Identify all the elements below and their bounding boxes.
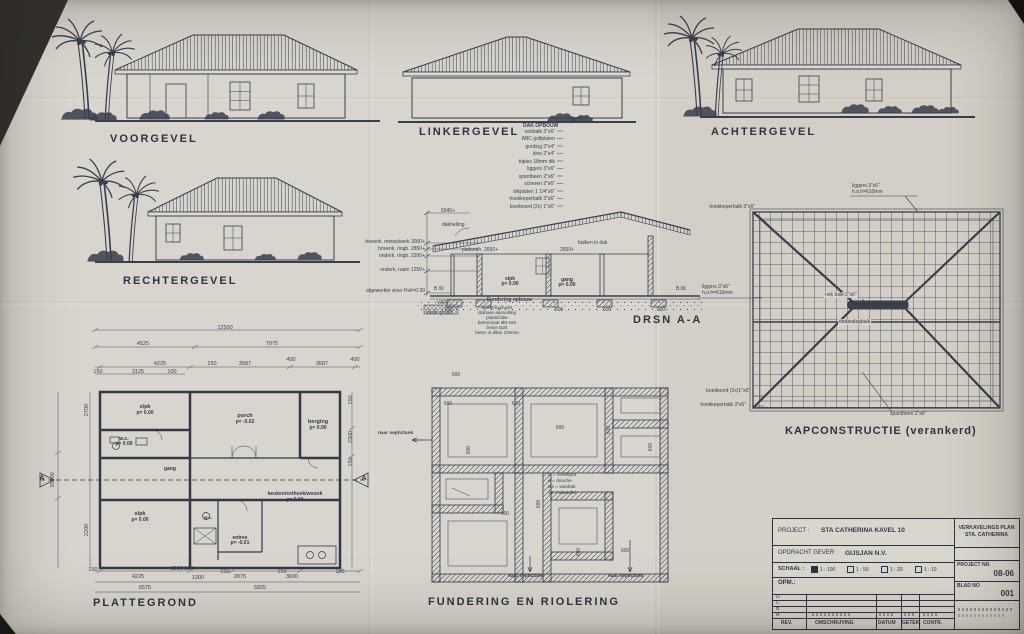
plattegrond-drawing <box>40 328 368 592</box>
plan-title-line1: VERKAVELINGS PLAN <box>954 525 1019 531</box>
dim-label: 600 <box>497 511 513 517</box>
dim-label: 600 <box>466 442 472 458</box>
dim-label: 600 <box>652 307 670 313</box>
kap-label-onderslag: onderslagbalk <box>838 319 871 325</box>
footer-col-label: REV. <box>781 620 792 626</box>
checkbox-icon <box>881 566 888 573</box>
dim-label: 1000 100 <box>167 566 197 572</box>
linkergevel-drawing <box>398 37 636 122</box>
checkbox-checked-icon <box>811 566 818 573</box>
titleblock-scale-row: SCHAAL : 1 : 100 1 : 50 1 : 20 1 : 10 <box>773 562 955 578</box>
bladnr-cell: BLAD NO 001 <box>954 581 1019 601</box>
revision-divider <box>773 606 954 607</box>
illegible-text <box>879 613 895 616</box>
divider <box>806 618 807 629</box>
room-level: p= -0.01 <box>210 540 270 546</box>
footer-col-label: OMSCHRIJVING <box>815 620 854 626</box>
section-level-mark: bovenk. ringb. 2850+ <box>337 246 425 252</box>
dak-opbouw-item: gording 2"x4" <box>477 144 555 150</box>
dak-opbouw-item: hoekkeperbalk 3"x6" <box>477 196 555 202</box>
dak-opbouw-item: ABC golfplaten <box>477 136 555 142</box>
scale-option: 1 : 20 <box>875 566 903 573</box>
scale-option: 1 : 10 <box>909 566 937 573</box>
section-level-mark: bovenk. metselwerk 3000+ <box>337 239 425 245</box>
dim-label: 600 <box>617 548 633 554</box>
dim-label: 2700 <box>84 395 90 425</box>
septic-label: naar septictank <box>378 431 413 436</box>
divider <box>876 618 877 629</box>
architect-stamp-illegible <box>958 608 1014 611</box>
title-block: PROJECT : STA CATHERINA KAVEL 10 OPDRACH… <box>772 518 1020 630</box>
room-level: p= -0.02 <box>215 419 275 425</box>
foundation-note: beton vl.dikte 100mm <box>452 330 542 335</box>
dim-label: 100 <box>157 369 187 375</box>
dak-opbouw-item: nokbalk 3"x6" <box>477 129 555 135</box>
dak-opbouw-item: spantbeen 2"x6" <box>477 174 555 180</box>
septic-label: naar septictank <box>508 574 543 579</box>
divider <box>901 618 902 629</box>
dim-label: 3587 <box>230 361 260 367</box>
projectnr-cell: PROJECT NR. 08-06 <box>954 560 1019 582</box>
dim-label: 2200 <box>84 515 90 545</box>
room-label: w.c. <box>196 515 220 520</box>
titleblock-opm-row: OPM.: <box>773 577 955 595</box>
projectnr-label: PROJECT NR. <box>957 562 991 568</box>
architect-stamp-cell <box>954 600 1019 629</box>
fundering-legend: ws = wasbak <box>548 485 576 490</box>
dim-label: 150 <box>348 385 354 415</box>
dim-label: 150 <box>83 369 113 375</box>
scale-option-label: 1 : 20 <box>890 567 903 573</box>
room-level: p= 0.00 <box>235 497 355 503</box>
fundering-legend: cl = closetpot <box>548 473 576 478</box>
dim-label: 600 <box>440 401 456 407</box>
kap-label-spantbeen: spantbeen 2"x6" <box>890 411 926 417</box>
panel-title-plattegrond: PLATTEGROND <box>93 597 198 609</box>
footer-col-label: CONTR. <box>923 620 942 626</box>
checkbox-icon <box>847 566 854 573</box>
panel-title-voorgevel: VOORGEVEL <box>110 133 198 145</box>
dim-label: 600 <box>550 307 568 313</box>
footer-col-label: DATUM <box>878 620 896 626</box>
dim-label: 400 <box>276 357 306 363</box>
photo-of-blueprint: VOORGEVEL LINKERGEVEL ACHTERGEVEL RECHTE… <box>0 0 1024 634</box>
empty-cell <box>954 547 1019 561</box>
room-level: p= 0.00 <box>288 425 348 431</box>
kap-label-hoekkeper-top: hoekkeperbalk 3"x6" <box>675 204 755 210</box>
revision-divider <box>773 600 954 601</box>
client-label: OPDRACHT GEVER : <box>778 550 838 556</box>
architect-stamp-illegible <box>958 614 1006 617</box>
fundering-legend: d = douche <box>548 479 572 484</box>
titleblock-client-row: OPDRACHT GEVER : GIJSJAN N.V. <box>773 545 955 563</box>
room-level: p= 0.00 <box>115 410 175 416</box>
dim-label: 150 <box>78 567 108 573</box>
project-label: PROJECT : <box>778 528 809 534</box>
dim-label: 4225 <box>123 574 153 580</box>
kap-label-liggers-left2: h.o.h=610mm <box>702 290 733 296</box>
panel-title-fundering: FUNDERING EN RIOLERING <box>428 596 620 608</box>
section-beams-label: balken in dak <box>578 240 607 246</box>
section-ceiling-label: plafondh. 2650+ <box>462 247 498 253</box>
dim-label: 150 <box>325 569 355 575</box>
titleblock-project-row: PROJECT : STA CATHERINA KAVEL 10 <box>773 519 955 546</box>
section-slope-label: dakhelling <box>442 222 465 228</box>
scale-option: 1 : 100 <box>805 566 835 573</box>
dim-label: 600 <box>448 372 464 378</box>
dim-label: 3125 <box>123 369 153 375</box>
dim-label: 3587 <box>307 361 337 367</box>
kap-label-boeiboord: boeiboord (2x)1"x6" <box>672 388 750 394</box>
room-label: gang <box>150 466 190 472</box>
dim-label: 7975 <box>257 341 287 347</box>
revision-header-row: REV. OMSCHRIJVING DATUM GETEK. CONTR. <box>773 618 955 629</box>
panel-title-doorsnede: DRSN A-A <box>633 314 702 326</box>
dak-opbouw-item: trikplaten 1 1/4"x6" <box>477 189 555 195</box>
project-value: STA CATHERINA KAVEL 10 <box>821 527 905 534</box>
client-value: GIJSJAN N.V. <box>845 550 887 557</box>
dim-label: 600 <box>606 422 612 438</box>
dim-label: 10000 <box>50 465 56 495</box>
section-level-mark: afgewerkte vloer Peil=0.00 <box>337 288 425 294</box>
dim-label: 600 <box>648 439 654 455</box>
dim-label: 3600 <box>277 574 307 580</box>
room-level: p= 0.00 <box>110 517 170 523</box>
kap-label-nokbalk: nok balk 3"x6" <box>824 292 858 298</box>
fundering-legend: wt = wastafel <box>548 491 576 496</box>
paper-fold-horizontal <box>0 96 1024 102</box>
dak-opbouw-item: scheren 2"x6" <box>477 181 555 187</box>
revision-divider <box>773 612 954 613</box>
dim-label: 400 <box>340 357 370 363</box>
illegible-text <box>923 613 937 616</box>
dak-opbouw-item: kloe 2"x4" <box>477 151 555 157</box>
dim-label: 2875 <box>225 574 255 580</box>
scale-option-label: 1 : 50 <box>856 567 869 573</box>
footer-col-label: GETEK. <box>902 620 921 626</box>
room-level: p= 0.00 <box>104 441 144 447</box>
blueprint-paper: VOORGEVEL LINKERGEVEL ACHTERGEVEL RECHTE… <box>0 0 1024 634</box>
projectnr-value: 08-06 <box>954 569 1014 578</box>
dim-label: 600 <box>440 307 458 313</box>
panel-title-rechtergevel: RECHTERGEVEL <box>123 275 237 287</box>
dak-opbouw-item: triplex 18mm dik <box>477 159 555 165</box>
scale-label: SCHAAL : <box>778 566 804 572</box>
scale-option: 1 : 50 <box>841 566 869 573</box>
section-level-mark: onderk. ringb. 2200+ <box>337 253 425 259</box>
section-bw-label: B.W. <box>434 286 445 292</box>
dim-label: 600 <box>598 307 616 313</box>
scale-option-label: 1 : 10 <box>924 567 937 573</box>
dim-label: 5925 <box>245 585 275 591</box>
section-height-label: 5045+ <box>425 208 455 214</box>
panel-title-kapconstructie: KAPCONSTRUCTIE (verankerd) <box>785 425 977 437</box>
kap-label-liggers-top2: h.o.h=610mm <box>852 189 883 195</box>
dim-label: 600 <box>536 496 542 512</box>
dim-label: 4525 <box>128 341 158 347</box>
dim-label: 1300 <box>183 575 213 581</box>
dim-label: 600 <box>576 544 582 560</box>
section-room-level: p= 0.00 <box>495 281 525 287</box>
checkbox-icon <box>915 566 922 573</box>
plan-title-cell: VERKAVELINGS PLAN STA. CATHERINA <box>954 519 1019 548</box>
opm-label: OPM.: <box>778 580 795 586</box>
dim-label: 600 <box>552 425 568 431</box>
dak-opbouw-item: boeiboord (2x) 1"x6" <box>477 204 555 210</box>
panel-title-achtergevel: ACHTERGEVEL <box>711 126 816 138</box>
revision-grid: D C B A <box>773 594 955 619</box>
section-room-level: p= 0.00 <box>552 282 582 288</box>
section-var-label: VAR. <box>437 300 448 306</box>
section-marker: A <box>36 475 48 482</box>
section-ceiling-label: 2650+ <box>560 247 574 253</box>
divider <box>919 618 920 629</box>
dim-label: 12500 <box>210 325 240 331</box>
scale-option-label: 1 : 100 <box>820 567 835 573</box>
dak-opbouw-item: liggers 3"x6" <box>477 166 555 172</box>
dim-label: 150 <box>197 361 227 367</box>
rechtergevel-drawing <box>73 159 360 262</box>
septic-label: naar septictank <box>608 574 643 579</box>
voorgevel-drawing <box>52 19 380 121</box>
dim-label: 600 <box>508 401 524 407</box>
dim-label: 150 <box>348 447 354 477</box>
section-marker: A <box>358 475 370 482</box>
blad-value: 001 <box>954 589 1014 598</box>
dim-label: 4225 <box>145 361 175 367</box>
illegible-text <box>904 613 914 616</box>
kap-label-hoekkeper-bottom: hoekkeperbalk 3"x6" <box>668 402 746 408</box>
section-level-mark: onderk. raam 1250+ <box>337 267 425 273</box>
dim-label: 6575 <box>130 585 160 591</box>
section-bw-label: B.W. <box>676 286 687 292</box>
foundation-note-title: Fundering opbouw <box>487 297 532 303</box>
illegible-text <box>812 613 852 616</box>
plan-title-line2: STA. CATHERINA <box>954 532 1019 538</box>
